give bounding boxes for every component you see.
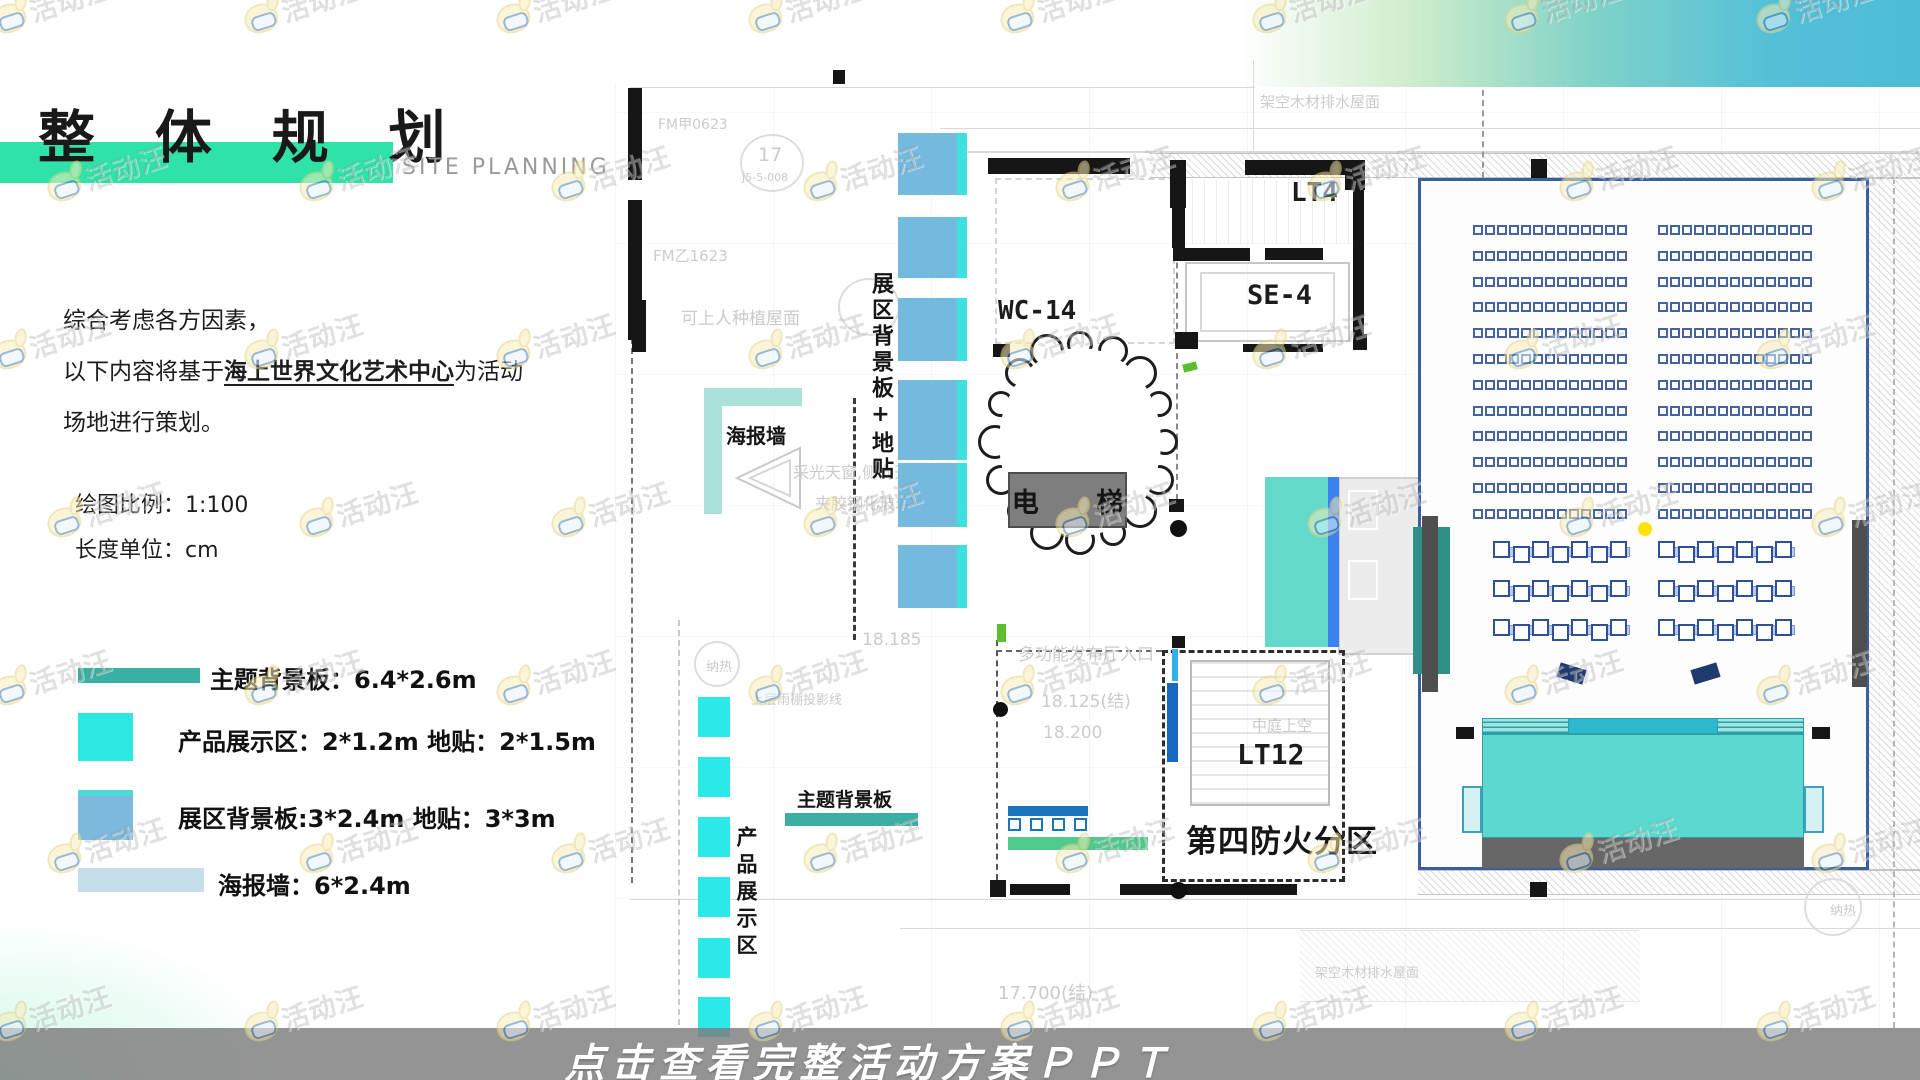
reception-blue-bar bbox=[1008, 806, 1088, 816]
audience-seat bbox=[1778, 483, 1788, 493]
audience-seat bbox=[1742, 354, 1752, 364]
audience-seat bbox=[1670, 328, 1680, 338]
audience-seat bbox=[1521, 483, 1531, 493]
audience-seat bbox=[1682, 302, 1692, 312]
slide: 电 梯 WC-14 LT4 SE-4 LT12 第四防火分区 海报墙 主题背景板… bbox=[0, 0, 1920, 1080]
audience-seat bbox=[1670, 251, 1680, 261]
audience-seat bbox=[1605, 431, 1615, 441]
audience-seat bbox=[1569, 302, 1579, 312]
small-blue-strip-dark bbox=[1167, 683, 1178, 762]
cad-annotation: 17.700(结) bbox=[998, 979, 1093, 1005]
audience-seat bbox=[1682, 380, 1692, 390]
wall-segment bbox=[1169, 499, 1184, 512]
cad-line bbox=[630, 899, 1920, 900]
audience-seat bbox=[1569, 328, 1579, 338]
audience-seat bbox=[1569, 225, 1579, 235]
room-label-lt4: LT4 bbox=[1291, 178, 1338, 208]
mascot-dog-icon bbox=[997, 0, 1038, 37]
audience-seat bbox=[1581, 225, 1591, 235]
audience-seat bbox=[1557, 431, 1567, 441]
audience-seat bbox=[1497, 302, 1507, 312]
audience-seat bbox=[1533, 302, 1543, 312]
audience-seat bbox=[1509, 354, 1519, 364]
audience-seat bbox=[1557, 406, 1567, 416]
watermark-item: 活动汪 bbox=[294, 471, 423, 546]
audience-seat bbox=[1581, 483, 1591, 493]
audience-seat bbox=[1545, 509, 1555, 519]
bench-seat bbox=[1736, 580, 1753, 597]
legend-swatch-poster-wall bbox=[78, 868, 204, 892]
bench-seat bbox=[1610, 619, 1627, 636]
wall-segment bbox=[1010, 884, 1070, 895]
wall-segment bbox=[1530, 882, 1547, 897]
audience-seat bbox=[1742, 251, 1752, 261]
watermark-text: 活动汪 bbox=[528, 303, 620, 366]
audience-seat bbox=[1742, 406, 1752, 416]
audience-seat bbox=[1682, 483, 1692, 493]
audience-seat bbox=[1545, 431, 1555, 441]
audience-seat bbox=[1485, 251, 1495, 261]
audience-seat bbox=[1605, 277, 1615, 287]
audience-seat bbox=[1790, 431, 1800, 441]
audience-seat bbox=[1605, 380, 1615, 390]
cad-dashed-line bbox=[853, 398, 856, 640]
audience-seat bbox=[1473, 251, 1483, 261]
audience-seat bbox=[1778, 354, 1788, 364]
reception-seat bbox=[1052, 818, 1065, 831]
bench-seat bbox=[1678, 585, 1695, 602]
audience-seat bbox=[1533, 509, 1543, 519]
watermark-text: 活动汪 bbox=[528, 0, 620, 30]
bench-seat bbox=[1493, 580, 1510, 597]
exhibit-backdrop-sticker bbox=[957, 380, 967, 460]
audience-seat bbox=[1485, 328, 1495, 338]
bench-seat bbox=[1736, 619, 1753, 636]
audience-seat bbox=[1569, 354, 1579, 364]
audience-seat bbox=[1557, 354, 1567, 364]
product-display-booth bbox=[698, 877, 730, 917]
audience-seat bbox=[1766, 406, 1776, 416]
small-blue-strip-light bbox=[1172, 649, 1178, 681]
audience-seat bbox=[1670, 354, 1680, 364]
stage-platform bbox=[1482, 734, 1804, 838]
audience-seat bbox=[1730, 354, 1740, 364]
audience-seat bbox=[1718, 251, 1728, 261]
audience-seat bbox=[1694, 380, 1704, 390]
reception-seat bbox=[1074, 818, 1087, 831]
cad-dashed-line bbox=[631, 338, 633, 883]
cta-banner-text[interactable]: 点击查看完整活动方案ＰＰＴ bbox=[0, 1031, 1830, 1080]
audience-seat bbox=[1766, 380, 1776, 390]
audience-seat bbox=[1730, 457, 1740, 467]
watermark-text: 活动汪 bbox=[528, 639, 620, 702]
mascot-dog-icon bbox=[493, 0, 534, 37]
mascot-dog-icon bbox=[296, 503, 337, 541]
wall-segment bbox=[988, 158, 1130, 174]
audience-seat bbox=[1766, 354, 1776, 364]
audience-seat bbox=[1718, 483, 1728, 493]
audience-seat bbox=[1730, 483, 1740, 493]
cad-line bbox=[940, 128, 1920, 129]
audience-seat bbox=[1497, 483, 1507, 493]
audience-seat bbox=[1593, 251, 1603, 261]
audience-seat bbox=[1682, 277, 1692, 287]
audience-seat bbox=[1778, 251, 1788, 261]
exhibit-backdrop-board bbox=[898, 133, 957, 195]
audience-seat bbox=[1802, 328, 1812, 338]
bench-seat bbox=[1717, 624, 1734, 641]
audience-seat bbox=[1658, 509, 1668, 519]
theme-backdrop-label: 主题背景板 bbox=[797, 785, 892, 812]
exhibit-backdrop-label: 展区背景板+地贴 bbox=[864, 272, 896, 483]
audience-seat bbox=[1485, 380, 1495, 390]
audience-seat bbox=[1533, 380, 1543, 390]
audience-seat bbox=[1557, 509, 1567, 519]
wall-segment bbox=[993, 344, 1010, 357]
bench-seat bbox=[1532, 580, 1549, 597]
audience-seat bbox=[1593, 328, 1603, 338]
audience-seat bbox=[1473, 302, 1483, 312]
audience-seat bbox=[1593, 406, 1603, 416]
audience-seat bbox=[1658, 380, 1668, 390]
mascot-dog-icon bbox=[0, 671, 30, 709]
audience-seat bbox=[1730, 302, 1740, 312]
audience-seat bbox=[1545, 380, 1555, 390]
audience-seat bbox=[1802, 302, 1812, 312]
audience-seat bbox=[1670, 380, 1680, 390]
audience-seat bbox=[1706, 354, 1716, 364]
product-display-booth bbox=[698, 817, 730, 857]
cad-annotation: 夹胶钢化玻璃 bbox=[815, 490, 911, 514]
audience-seat bbox=[1670, 509, 1680, 519]
exhibit-backdrop-board bbox=[898, 217, 957, 278]
audience-seat bbox=[1742, 225, 1752, 235]
audience-seat bbox=[1706, 406, 1716, 416]
audience-seat bbox=[1658, 483, 1668, 493]
audience-seat bbox=[1593, 431, 1603, 441]
bench-seat bbox=[1678, 624, 1695, 641]
room-label-se4: SE-4 bbox=[1247, 280, 1312, 311]
audience-seat bbox=[1778, 406, 1788, 416]
bench-seat bbox=[1552, 546, 1569, 563]
audience-seat bbox=[1802, 509, 1812, 519]
bench-seat bbox=[1756, 585, 1773, 602]
audience-seat bbox=[1473, 509, 1483, 519]
audience-seat bbox=[1766, 225, 1776, 235]
bench-seat bbox=[1775, 541, 1792, 558]
audience-seat bbox=[1581, 251, 1591, 261]
audience-seat bbox=[1670, 277, 1680, 287]
audience-seat bbox=[1557, 457, 1567, 467]
audience-seat bbox=[1790, 483, 1800, 493]
wall-junction-dot bbox=[993, 702, 1008, 717]
audience-seat bbox=[1617, 251, 1627, 261]
audience-seat bbox=[1670, 431, 1680, 441]
audience-seat bbox=[1694, 431, 1704, 441]
audience-seat bbox=[1593, 509, 1603, 519]
audience-seat bbox=[1605, 328, 1615, 338]
audience-seat bbox=[1718, 380, 1728, 390]
audience-seat bbox=[1778, 328, 1788, 338]
audience-seat bbox=[1617, 457, 1627, 467]
audience-seat bbox=[1694, 302, 1704, 312]
audience-seat bbox=[1617, 328, 1627, 338]
stage-left-strip bbox=[1482, 718, 1569, 734]
reception-green-bar bbox=[1008, 837, 1148, 850]
audience-seat bbox=[1569, 457, 1579, 467]
audience-seat bbox=[1485, 302, 1495, 312]
audience-seat bbox=[1569, 277, 1579, 287]
audience-seat bbox=[1766, 483, 1776, 493]
audience-seat bbox=[1730, 328, 1740, 338]
audience-seat bbox=[1694, 277, 1704, 287]
bench-seat bbox=[1658, 619, 1675, 636]
audience-seat bbox=[1790, 277, 1800, 287]
audience-seat bbox=[1497, 328, 1507, 338]
audience-seat bbox=[1682, 251, 1692, 261]
marker-yellow-dot bbox=[1638, 522, 1652, 536]
display-backdrop-strip bbox=[1328, 477, 1339, 647]
audience-seat bbox=[1658, 457, 1668, 467]
audience-seat bbox=[1670, 483, 1680, 493]
audience-seat bbox=[1766, 509, 1776, 519]
audience-seat bbox=[1766, 277, 1776, 287]
mascot-dog-icon bbox=[548, 839, 589, 877]
audience-seat bbox=[1694, 509, 1704, 519]
intro-paragraph: 综合考虑各方因素， 以下内容将基于海上世界文化艺术中心为活动 场地进行策划。 bbox=[63, 296, 523, 449]
cad-annotation: 18.185 bbox=[862, 630, 921, 650]
audience-seat bbox=[1605, 225, 1615, 235]
audience-seat bbox=[1670, 457, 1680, 467]
audience-seat bbox=[1718, 354, 1728, 364]
audience-seat bbox=[1658, 354, 1668, 364]
audience-seat bbox=[1581, 380, 1591, 390]
audience-seat bbox=[1593, 354, 1603, 364]
legend-swatch-product-display bbox=[78, 713, 133, 761]
bench-seat bbox=[1513, 546, 1530, 563]
bench-seat bbox=[1775, 580, 1792, 597]
cad-dashed-line bbox=[996, 640, 998, 880]
room-label-lt12: LT12 bbox=[1237, 738, 1304, 771]
elevator-label: 电 梯 bbox=[988, 481, 1147, 520]
audience-seat bbox=[1670, 225, 1680, 235]
bench-seat bbox=[1571, 619, 1588, 636]
exhibit-backdrop-board bbox=[898, 463, 957, 527]
audience-seat bbox=[1581, 354, 1591, 364]
audience-seat bbox=[1658, 251, 1668, 261]
wall-segment bbox=[1243, 344, 1323, 352]
audience-seat bbox=[1658, 406, 1668, 416]
cad-annotation: FM甲0623 bbox=[658, 114, 728, 134]
bench-seat bbox=[1493, 541, 1510, 558]
cad-annotation: 17 bbox=[758, 144, 782, 166]
audience-seat bbox=[1778, 431, 1788, 441]
audience-seat bbox=[1521, 509, 1531, 519]
audience-seat bbox=[1593, 302, 1603, 312]
audience-seat bbox=[1754, 277, 1764, 287]
wall-segment bbox=[1245, 160, 1355, 175]
audience-seat bbox=[1730, 406, 1740, 416]
audience-seat bbox=[1706, 251, 1716, 261]
audience-seat bbox=[1593, 380, 1603, 390]
audience-seat bbox=[1682, 509, 1692, 519]
audience-seat bbox=[1473, 483, 1483, 493]
audience-seat bbox=[1694, 457, 1704, 467]
audience-seat bbox=[1790, 509, 1800, 519]
audience-seat bbox=[1790, 457, 1800, 467]
audience-seat bbox=[1605, 457, 1615, 467]
audience-seat bbox=[1682, 225, 1692, 235]
audience-seat bbox=[1802, 277, 1812, 287]
wall-segment bbox=[628, 88, 642, 180]
audience-seat bbox=[1754, 354, 1764, 364]
audience-seat bbox=[1497, 457, 1507, 467]
audience-seat bbox=[1497, 406, 1507, 416]
audience-seat bbox=[1706, 277, 1716, 287]
audience-seat bbox=[1485, 509, 1495, 519]
audience-seat bbox=[1694, 483, 1704, 493]
audience-seat bbox=[1557, 483, 1567, 493]
audience-seat bbox=[1658, 328, 1668, 338]
audience-seat bbox=[1694, 328, 1704, 338]
audience-seat bbox=[1509, 431, 1519, 441]
exhibit-backdrop-sticker bbox=[957, 298, 967, 361]
wall-segment bbox=[990, 880, 1006, 897]
bench-seat bbox=[1658, 580, 1675, 597]
exhibit-backdrop-sticker bbox=[957, 463, 967, 527]
gray-column-left bbox=[1422, 516, 1438, 692]
audience-seat bbox=[1742, 431, 1752, 441]
poster-wall-horizontal bbox=[704, 388, 802, 406]
audience-seat bbox=[1730, 509, 1740, 519]
unit-label: 长度单位：cm bbox=[75, 532, 219, 564]
wall-segment bbox=[1173, 248, 1250, 261]
legend-label-theme-backdrop: 主题背景板：6.4*2.6m bbox=[210, 660, 477, 695]
top-right-gradient bbox=[1240, 0, 1920, 87]
scale-label: 绘图比例：1:100 bbox=[75, 487, 248, 519]
audience-seat bbox=[1617, 277, 1627, 287]
product-display-booth bbox=[698, 757, 730, 797]
exhibit-backdrop-board bbox=[898, 380, 957, 460]
watermark-item: 活动汪 bbox=[239, 0, 368, 42]
audience-seat bbox=[1509, 406, 1519, 416]
bench-seat bbox=[1591, 624, 1608, 641]
audience-seat bbox=[1545, 457, 1555, 467]
audience-seat bbox=[1557, 251, 1567, 261]
audience-seat bbox=[1718, 225, 1728, 235]
audience-seat bbox=[1497, 380, 1507, 390]
bench-seat bbox=[1493, 619, 1510, 636]
service-room-cell bbox=[1348, 490, 1378, 530]
audience-seat bbox=[1557, 380, 1567, 390]
bench-seat bbox=[1775, 619, 1792, 636]
intro-line-3: 场地进行策划。 bbox=[63, 398, 523, 449]
audience-seat bbox=[1730, 251, 1740, 261]
exhibit-backdrop-sticker bbox=[957, 133, 967, 195]
audience-seat bbox=[1802, 483, 1812, 493]
cad-dashed-line bbox=[678, 620, 680, 1025]
audience-seat bbox=[1545, 277, 1555, 287]
audience-seat bbox=[1617, 483, 1627, 493]
wall-segment bbox=[1172, 200, 1185, 248]
audience-seat bbox=[1730, 277, 1740, 287]
audience-seat bbox=[1521, 225, 1531, 235]
bench-seat bbox=[1756, 546, 1773, 563]
cad-line bbox=[630, 87, 1255, 88]
audience-seat bbox=[1670, 406, 1680, 416]
audience-seat bbox=[1473, 380, 1483, 390]
audience-seat bbox=[1754, 302, 1764, 312]
cad-annotation: FM乙1623 bbox=[653, 245, 728, 266]
cta-banner[interactable]: 点击查看完整活动方案ＰＰＴ bbox=[0, 1028, 1920, 1080]
audience-seat bbox=[1802, 225, 1812, 235]
cad-annotation: 18.200 bbox=[1043, 723, 1102, 743]
audience-seat bbox=[1581, 406, 1591, 416]
cad-annotation: 架空木材排水屋面 bbox=[1260, 91, 1380, 112]
audience-seat bbox=[1557, 225, 1567, 235]
audience-seat bbox=[1473, 406, 1483, 416]
audience-seat bbox=[1605, 251, 1615, 261]
legend-swatch-theme-backdrop bbox=[78, 668, 200, 683]
audience-seat bbox=[1497, 354, 1507, 364]
cad-annotation: 18.125(结) bbox=[1041, 687, 1131, 712]
audience-seat bbox=[1485, 354, 1495, 364]
bench-seat bbox=[1678, 546, 1695, 563]
audience-seat bbox=[1706, 457, 1716, 467]
cad-annotation: 可上人种植屋面 bbox=[681, 304, 800, 329]
audience-seat bbox=[1581, 277, 1591, 287]
audience-seat bbox=[1730, 380, 1740, 390]
audience-seat bbox=[1682, 354, 1692, 364]
audience-seat bbox=[1766, 251, 1776, 261]
bench-seat bbox=[1717, 546, 1734, 563]
audience-seat bbox=[1790, 225, 1800, 235]
audience-seat bbox=[1473, 328, 1483, 338]
audience-seat bbox=[1485, 483, 1495, 493]
audience-seat bbox=[1521, 302, 1531, 312]
stage-wing-left bbox=[1462, 786, 1482, 833]
audience-seat bbox=[1545, 406, 1555, 416]
audience-seat bbox=[1485, 457, 1495, 467]
cad-annotation: 纳热 bbox=[706, 656, 732, 675]
audience-seat bbox=[1718, 431, 1728, 441]
audience-seat bbox=[1742, 483, 1752, 493]
bench-seat bbox=[1610, 541, 1627, 558]
audience-seat bbox=[1581, 302, 1591, 312]
audience-seat bbox=[1790, 354, 1800, 364]
audience-seat bbox=[1754, 457, 1764, 467]
stage-right-strip bbox=[1717, 718, 1804, 734]
audience-seat bbox=[1802, 251, 1812, 261]
cad-annotation: 多功能发布厅入口 bbox=[1018, 640, 1154, 665]
exhibit-backdrop-sticker bbox=[957, 217, 967, 278]
audience-seat bbox=[1790, 406, 1800, 416]
audience-seat bbox=[1497, 431, 1507, 441]
audience-seat bbox=[1545, 225, 1555, 235]
audience-seat bbox=[1569, 483, 1579, 493]
audience-seat bbox=[1718, 302, 1728, 312]
legend-label-poster-wall: 海报墙：6*2.4m bbox=[218, 866, 411, 901]
page-subtitle: SITE PLANNING bbox=[402, 155, 610, 180]
audience-seat bbox=[1581, 328, 1591, 338]
wall-segment bbox=[1812, 727, 1830, 739]
audience-seat bbox=[1473, 457, 1483, 467]
mascot-dog-icon bbox=[548, 503, 589, 541]
wall-segment bbox=[1355, 334, 1367, 350]
intro-line-2: 以下内容将基于海上世界文化艺术中心为活动 bbox=[63, 347, 523, 398]
audience-seat bbox=[1485, 431, 1495, 441]
bench-seat bbox=[1532, 619, 1549, 636]
